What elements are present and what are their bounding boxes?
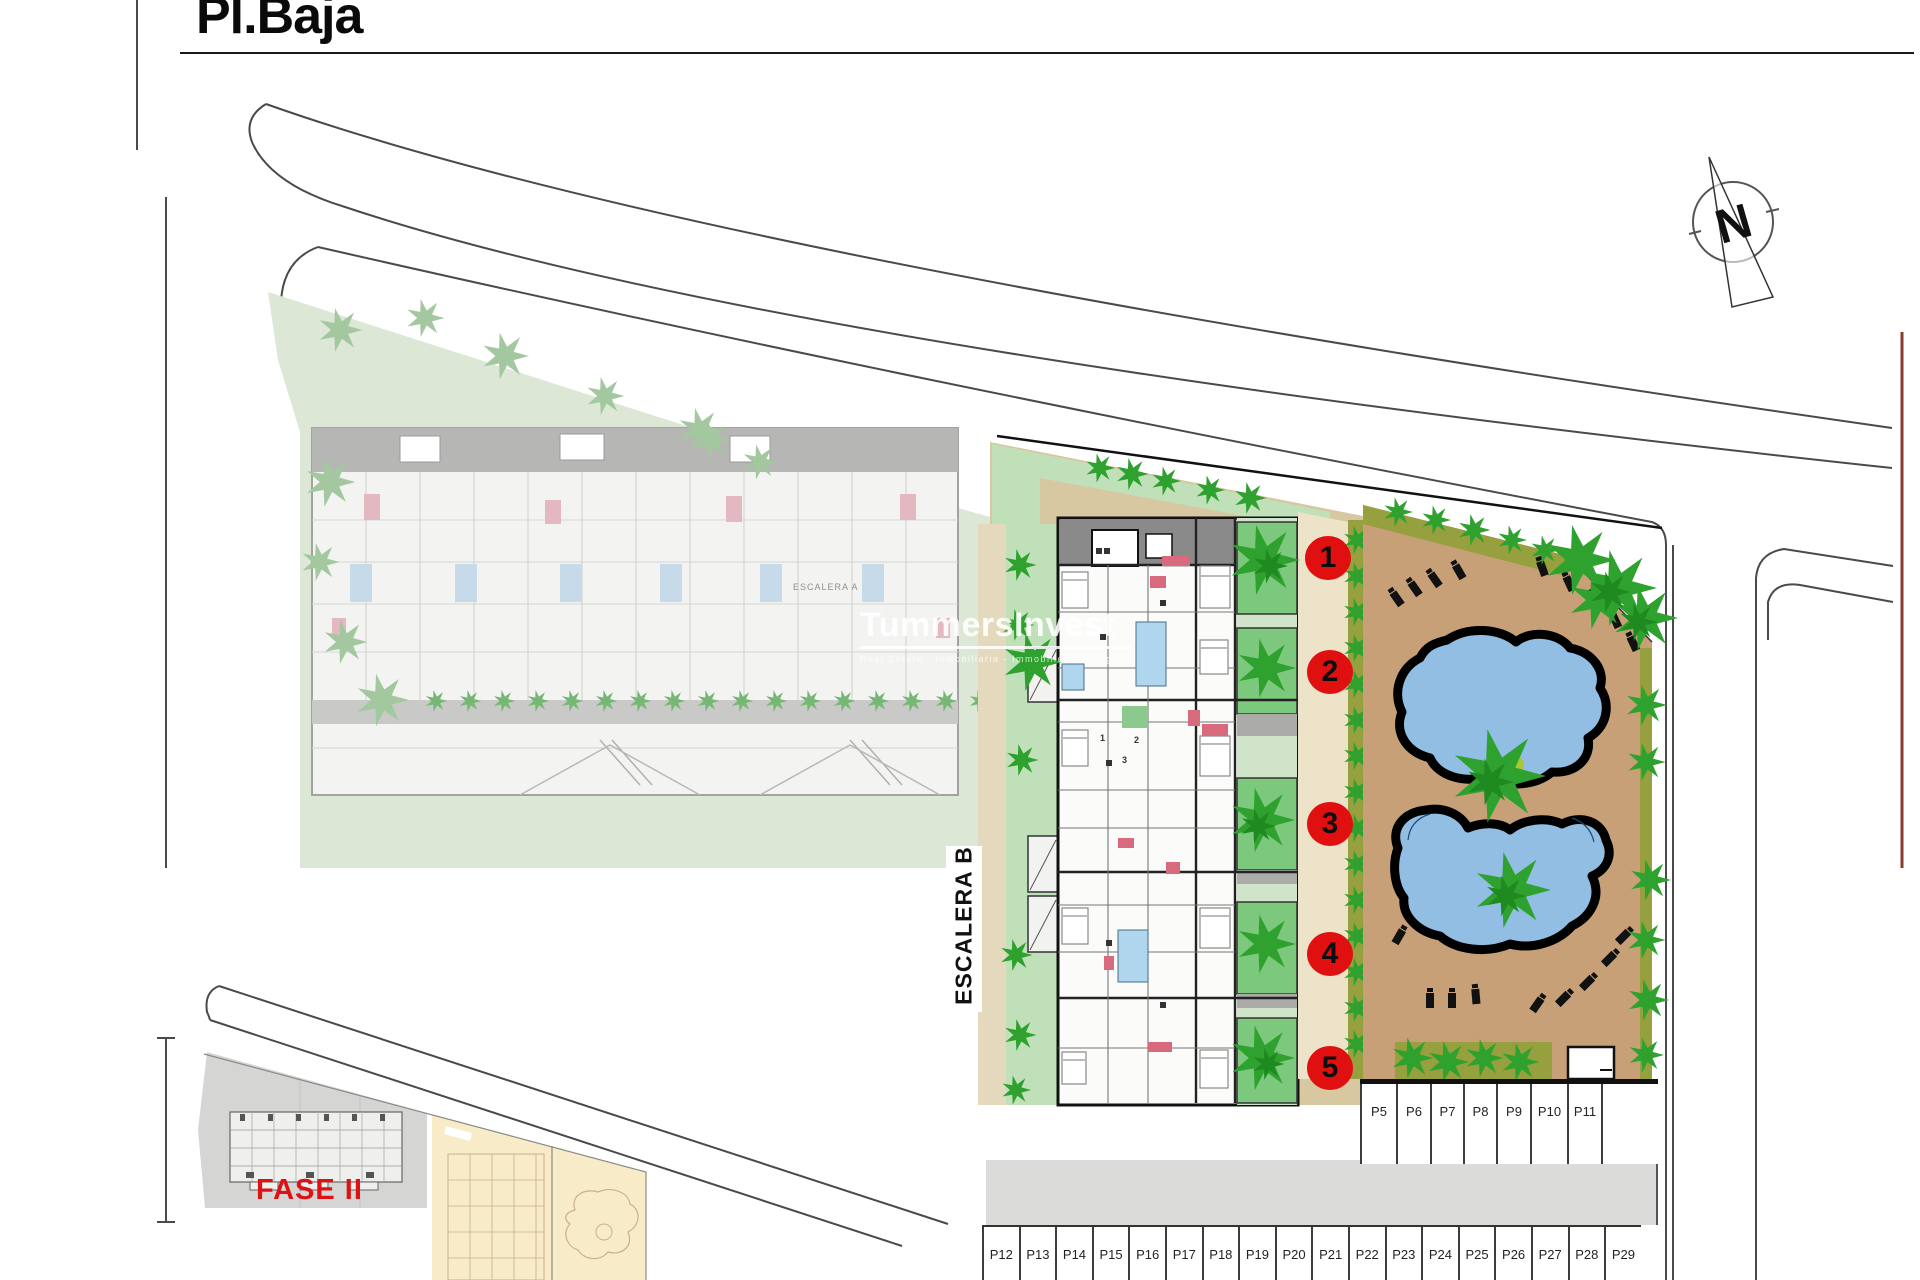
parking-stall-P9: P9	[1496, 1084, 1530, 1164]
watermark-tagline: Real Estate - Inmobiliaria - Immobilien …	[860, 654, 1132, 664]
parking-stall-P18: P18	[1202, 1227, 1239, 1280]
unit-marker-4: 4	[1307, 932, 1353, 976]
unit-marker-5: 5	[1307, 1046, 1353, 1090]
building-unit-number: 2	[1134, 735, 1139, 745]
watermark-brand: TummersInvest	[860, 606, 1132, 649]
parking-stall-P17: P17	[1165, 1227, 1202, 1280]
pool-deck	[1363, 497, 1678, 1082]
watermark: TummersInvest Real Estate - Inmobiliaria…	[860, 606, 1132, 664]
compass-north-letter: N	[1710, 194, 1758, 255]
minimap-fase2	[198, 986, 948, 1280]
parking-stall-P29: P29	[1604, 1227, 1641, 1280]
parking-stall-P14: P14	[1055, 1227, 1092, 1280]
fase2-label: FASE II	[256, 1174, 363, 1207]
unit-marker-3: 3	[1307, 802, 1353, 846]
parking-stall-P10: P10	[1530, 1084, 1567, 1164]
parking-stall-P12: P12	[982, 1227, 1019, 1280]
parking-stall-P21: P21	[1311, 1227, 1348, 1280]
parking-stall-P15: P15	[1092, 1227, 1129, 1280]
old-building-escalera-a	[268, 292, 991, 868]
unit-marker-2: 2	[1307, 650, 1353, 694]
parking-stall-P22: P22	[1348, 1227, 1385, 1280]
building-unit-number: 1	[1100, 733, 1105, 743]
parking-stall-empty	[1601, 1084, 1658, 1164]
escalera-b-text: ESCALERA B	[951, 846, 978, 1006]
title-rule	[180, 52, 1914, 54]
parking-stall-P27: P27	[1531, 1227, 1568, 1280]
sidewalk-band	[986, 1160, 1658, 1225]
parking-stall-P26: P26	[1494, 1227, 1531, 1280]
parking-stall-P24: P24	[1421, 1227, 1458, 1280]
parking-stall-P8: P8	[1463, 1084, 1496, 1164]
parking-row-lower: P12P13P14P15P16P17P18P19P20P21P22P23P24P…	[982, 1225, 1641, 1280]
parking-stall-P7: P7	[1430, 1084, 1463, 1164]
parking-stall-P5: P5	[1360, 1084, 1396, 1164]
parking-stall-P20: P20	[1275, 1227, 1312, 1280]
parking-stall-P23: P23	[1385, 1227, 1422, 1280]
page-frame-lines	[137, 0, 175, 1222]
parking-stall-P6: P6	[1396, 1084, 1430, 1164]
parking-stall-P25: P25	[1458, 1227, 1495, 1280]
building-unit-number: 3	[1122, 755, 1127, 765]
escalera-a-label: ESCALERA A	[793, 582, 859, 592]
unit-marker-1: 1	[1305, 536, 1351, 580]
pool-storage-room	[1568, 1047, 1614, 1079]
parking-stall-P19: P19	[1238, 1227, 1275, 1280]
parking-row-upper: P5P6P7P8P9P10P11	[1360, 1079, 1658, 1164]
parking-stall-P13: P13	[1019, 1227, 1056, 1280]
parking-stall-P16: P16	[1128, 1227, 1165, 1280]
north-compass: N	[1689, 157, 1779, 307]
parking-stall-P11: P11	[1567, 1084, 1601, 1164]
site-plan-page: N Pl.Baja TummersInvest Real	[0, 0, 1920, 1280]
escalera-b-label: ESCALERA B	[946, 846, 982, 1012]
parking-stall-P28: P28	[1568, 1227, 1605, 1280]
page-title: Pl.Baja	[196, 0, 362, 46]
